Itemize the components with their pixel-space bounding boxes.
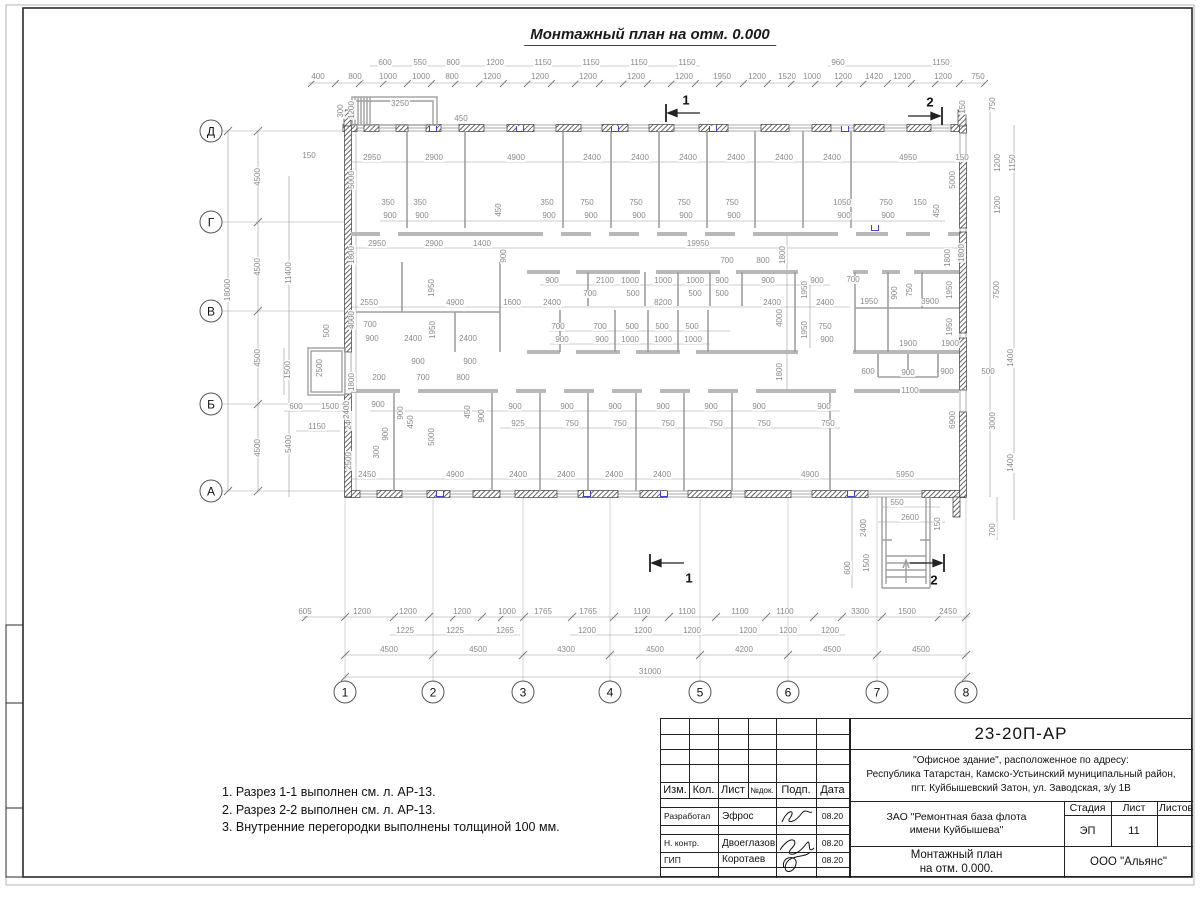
dim-label: 1225 — [445, 627, 465, 635]
dim-label: 1200 — [682, 627, 702, 635]
dim-label: 550 — [889, 499, 904, 507]
dim-label: 150 — [301, 152, 316, 160]
dim-label: 750 — [676, 199, 691, 207]
tb-col-doc: №док. — [748, 782, 776, 798]
dim-label: 150 — [912, 199, 927, 207]
dim-label: 1225 — [395, 627, 415, 635]
tb-name-3: Коротаев — [719, 852, 775, 867]
dim-label: 5000 — [348, 170, 356, 190]
dim-label: 2400 — [582, 154, 602, 162]
dim-label: 1950 — [801, 280, 809, 300]
tb-client-line2: имени Куйбышева" — [910, 824, 1004, 837]
dim-label: 750 — [989, 96, 997, 111]
panel-mark — [660, 491, 668, 497]
dim-label: 1900 — [898, 340, 918, 348]
dim-label: 350 — [412, 199, 427, 207]
dim-label: 1200 — [626, 73, 646, 81]
dim-label: 1000 — [378, 73, 398, 81]
dim-label: 19950 — [686, 240, 710, 248]
dim-label: 600 — [288, 403, 303, 411]
dim-label: 1200 — [398, 608, 418, 616]
dim-label: 900 — [370, 401, 385, 409]
dim-label: 4200 — [734, 646, 754, 654]
dim-label: 605 — [297, 608, 312, 616]
tb-role-1: Разработал — [661, 807, 718, 825]
dim-label: 1900 — [940, 340, 960, 348]
dim-label: 1050 — [832, 199, 852, 207]
dim-label: 900 — [816, 403, 831, 411]
tb-date-2: 08.20 — [816, 834, 849, 852]
dim-label: 150 — [954, 154, 969, 162]
dim-label: 1200 — [633, 627, 653, 635]
drawing-sheet: Монтажный план на отм. 0.000 60055080012… — [0, 0, 1200, 900]
section-label: 2 — [930, 573, 937, 588]
dim-label: 1200 — [578, 73, 598, 81]
dim-label: 1000 — [411, 73, 431, 81]
dim-label: 900 — [703, 403, 718, 411]
axis-bubble-col-2: 2 — [422, 681, 445, 704]
dim-label: 1200 — [482, 73, 502, 81]
tb-role-3: ГИП — [661, 852, 718, 867]
dim-label: 900 — [410, 358, 425, 366]
dim-label: 1150 — [931, 59, 950, 67]
dim-label: 1200 — [833, 73, 853, 81]
dim-label: 350 — [539, 199, 554, 207]
dim-label: 1520 — [777, 73, 797, 81]
panel-mark — [516, 126, 524, 132]
tb-object-line2: Республика Татарстан, Камско-Устьинский … — [866, 768, 1175, 782]
dim-label: 1265 — [495, 627, 515, 635]
dim-label: 1200 — [778, 627, 798, 635]
dim-label: 1200 — [352, 608, 372, 616]
tb-date-3: 08.20 — [816, 852, 849, 867]
axis-bubble-row-А: А — [200, 480, 223, 503]
tb-stage-value: ЭП — [1064, 815, 1111, 846]
axis-bubble-row-В: В — [200, 300, 223, 323]
dim-label: 1800 — [944, 248, 952, 268]
dim-label: 1800 — [776, 362, 784, 382]
dim-label: 31000 — [638, 668, 662, 676]
dim-label: 1100 — [677, 608, 696, 616]
dim-label: 1200 — [994, 153, 1002, 173]
dim-label: 750 — [878, 199, 893, 207]
dim-label: 900 — [714, 277, 729, 285]
dim-label: 4900 — [506, 154, 526, 162]
dim-label: 800 — [455, 374, 470, 382]
dim-label: 1950 — [946, 317, 954, 337]
dim-label: 900 — [900, 369, 915, 377]
dim-label: 2400 — [774, 154, 794, 162]
entrance-structures — [308, 97, 930, 588]
dim-label: 1765 — [578, 608, 598, 616]
dim-label: 900 — [594, 336, 609, 344]
dim-label: 700 — [415, 374, 430, 382]
dim-label: 1200 — [994, 195, 1002, 215]
dim-label: 750 — [564, 420, 579, 428]
panel-mark — [871, 225, 879, 231]
dim-label: 700 — [550, 323, 565, 331]
tb-object-line3: пгт. Куйбышевский Затон, ул. Заводская, … — [911, 782, 1131, 796]
dim-label: 500 — [684, 323, 699, 331]
tb-drawing-line2: на отм. 0.000. — [920, 862, 994, 876]
dim-label: 900 — [607, 403, 622, 411]
dim-label: 1000 — [653, 336, 673, 344]
dim-label: 700 — [582, 290, 597, 298]
dim-label: 5400 — [285, 434, 293, 454]
axis-bubble-col-1: 1 — [334, 681, 357, 704]
dim-label: 750 — [756, 420, 771, 428]
dim-label: 500 — [980, 368, 995, 376]
left-stamp-strip — [6, 625, 23, 877]
dim-label: 900 — [382, 212, 397, 220]
tb-drawing-line1: Монтажный план — [911, 848, 1003, 862]
dim-label: 1950 — [429, 320, 437, 340]
panel-mark — [583, 491, 591, 497]
dim-label: 900 — [382, 426, 390, 441]
dim-label: 900 — [478, 408, 486, 423]
tb-col-data: Дата — [816, 782, 849, 798]
dim-label: 2400 — [726, 154, 746, 162]
dim-label: 1000 — [497, 608, 517, 616]
dim-label: 700 — [989, 522, 997, 537]
axis-bubble-row-Б: Б — [200, 393, 223, 416]
axis-bubble-col-7: 7 — [866, 681, 889, 704]
dim-label: 1400 — [1007, 453, 1015, 473]
dim-label: 1150 — [581, 59, 600, 67]
dim-label: 7500 — [993, 280, 1001, 300]
tb-sheets-label: Листов — [1157, 801, 1193, 815]
dim-label: 800 — [755, 257, 770, 265]
dim-label: 5000 — [428, 427, 436, 447]
dim-label: 1100 — [775, 608, 794, 616]
dim-label: 4500 — [254, 257, 262, 277]
dim-label: 600 — [860, 368, 875, 376]
dim-label: 4500 — [468, 646, 488, 654]
dim-label: 900 — [583, 212, 598, 220]
dim-label: 900 — [544, 277, 559, 285]
dim-label: 750 — [612, 420, 627, 428]
dim-label: 2400 — [630, 154, 650, 162]
dim-label: 1765 — [533, 608, 553, 616]
dim-label: 1600 — [502, 299, 522, 307]
dim-label: 1150 — [307, 423, 326, 431]
dim-label: 900 — [751, 403, 766, 411]
dim-label: 2600 — [900, 514, 920, 522]
dim-label: 2400 — [458, 335, 478, 343]
dim-label: 900 — [541, 212, 556, 220]
dim-label: 3250 — [390, 100, 410, 108]
dim-label: 1100 — [900, 387, 919, 395]
dim-label: 5000 — [949, 170, 957, 190]
axis-bubble-col-4: 4 — [599, 681, 622, 704]
dim-label: 300 — [373, 444, 381, 459]
dim-label: 900 — [726, 212, 741, 220]
dim-label: 750 — [820, 420, 835, 428]
exterior-walls — [343, 110, 967, 517]
dim-label: 550 — [412, 59, 427, 67]
dim-label: 1000 — [653, 277, 673, 285]
dim-label: 750 — [817, 323, 832, 331]
drawing-title: Монтажный план на отм. 0.000 — [524, 26, 776, 46]
dim-label: 450 — [453, 115, 468, 123]
dim-label: 900 — [939, 368, 954, 376]
dim-label: 900 — [500, 248, 508, 263]
dim-label: 4000 — [776, 308, 784, 328]
tb-sheet-value: 11 — [1111, 815, 1157, 846]
dim-label: 1000 — [802, 73, 822, 81]
dim-label: 4500 — [254, 348, 262, 368]
section-label: 1 — [682, 93, 689, 108]
panel-mark — [436, 491, 444, 497]
dim-label: 750 — [906, 282, 914, 297]
note-line: 3. Внутренние перегородки выполнены толщ… — [222, 819, 560, 837]
dim-label: 2950 — [362, 154, 382, 162]
partitions — [351, 131, 959, 491]
dim-label: 1950 — [859, 298, 879, 306]
dim-label: 2400 — [762, 299, 782, 307]
tb-stage-label: Стадия — [1064, 801, 1111, 815]
dim-label: 18000 — [224, 278, 232, 302]
dim-label: 4500 — [254, 167, 262, 187]
title-block: Изм. Кол. Лист №док. Подп. Дата Разработ… — [660, 718, 1192, 877]
dim-label: 500 — [714, 290, 729, 298]
dim-label: 4500 — [254, 438, 262, 458]
dim-label: 900 — [397, 405, 405, 420]
tb-col-izm: Изм. — [661, 782, 689, 798]
dim-label: 750 — [708, 420, 723, 428]
tb-client-line1: ЗАО "Ремонтная база флота — [886, 811, 1026, 824]
dim-label: 1000 — [620, 277, 640, 285]
axis-bubble-col-6: 6 — [777, 681, 800, 704]
dim-label: 500 — [323, 323, 331, 338]
dim-label: 4500 — [822, 646, 842, 654]
dim-label: 1200 — [485, 59, 505, 67]
dim-label: 1400 — [472, 240, 492, 248]
dim-label: 925 — [510, 420, 525, 428]
tb-doc-number: 23-20П-АР — [849, 719, 1193, 749]
dim-label: 1200 — [452, 608, 472, 616]
dim-label: 1400 — [1007, 348, 1015, 368]
dim-label: 600 — [377, 59, 392, 67]
dim-label: 2950 — [367, 240, 387, 248]
dim-label: 1950 — [712, 73, 732, 81]
dim-label: 150 — [934, 516, 942, 531]
axis-bubble-col-3: 3 — [512, 681, 535, 704]
axis-bubble-col-8: 8 — [955, 681, 978, 704]
dim-label: 900 — [414, 212, 429, 220]
dim-label: 1800 — [779, 245, 787, 265]
dim-label: 1420 — [864, 73, 884, 81]
dim-label: 1150 — [1009, 153, 1017, 172]
tb-name-2: Двоеглазов — [719, 834, 775, 852]
panel-mark — [429, 126, 437, 132]
dim-label: 6900 — [949, 410, 957, 430]
dim-label: 1200 — [738, 627, 758, 635]
dim-label: 4500 — [645, 646, 665, 654]
dim-label: 700 — [362, 321, 377, 329]
dim-label: 900 — [462, 358, 477, 366]
dim-label: 150 — [959, 99, 967, 114]
dim-label: 2400 — [542, 299, 562, 307]
dim-label: 3300 — [850, 608, 870, 616]
dim-label: 3000 — [989, 411, 997, 431]
tb-sheet-label: Лист — [1111, 801, 1157, 815]
dim-label: 500 — [687, 290, 702, 298]
dimension-ticks — [224, 80, 988, 681]
dim-label: 450 — [407, 414, 415, 429]
dim-label: 2400 — [652, 471, 672, 479]
tb-date-1: 08.20 — [816, 807, 849, 825]
dim-label: 900 — [631, 212, 646, 220]
dim-label: 2400 — [343, 400, 351, 420]
dim-label: 1150 — [677, 59, 696, 67]
dim-label: 900 — [809, 277, 824, 285]
tb-role-2: Н. контр. — [661, 834, 718, 852]
dim-label: 2450 — [357, 471, 377, 479]
dim-label: 1200 — [933, 73, 953, 81]
dim-label: 2400 — [403, 335, 423, 343]
dim-label: 8200 — [653, 299, 673, 307]
dim-label: 900 — [655, 403, 670, 411]
dim-label: 750 — [660, 420, 675, 428]
dim-label: 200 — [371, 374, 386, 382]
panel-mark — [847, 491, 855, 497]
note-line: 2. Разрез 2-2 выполнен см. л. АР-13. — [222, 802, 560, 820]
dim-label: 1500 — [863, 553, 871, 573]
dim-label: 2450 — [938, 608, 958, 616]
dim-label: 1200 — [892, 73, 912, 81]
dim-label: 4300 — [556, 646, 576, 654]
dim-label: 2400 — [556, 471, 576, 479]
dim-label: 1500 — [320, 403, 340, 411]
dim-label: 11400 — [285, 261, 293, 285]
dim-label: 300 — [337, 103, 345, 118]
dim-label: 2900 — [424, 240, 444, 248]
dim-label: 1150 — [533, 59, 552, 67]
dim-label: 2550 — [359, 299, 379, 307]
panel-mark — [611, 126, 619, 132]
dim-label: 1000 — [683, 336, 703, 344]
dim-label: 1200 — [674, 73, 694, 81]
axis-bubble-row-Д: Д — [200, 120, 223, 143]
dim-label: 900 — [836, 212, 851, 220]
dim-label: 4950 — [898, 154, 918, 162]
dim-label: 1200 — [530, 73, 550, 81]
dim-label: 600 — [844, 560, 852, 575]
dim-label: 450 — [495, 202, 503, 217]
tb-name-1: Эфрос — [719, 807, 775, 825]
dim-label: 1500 — [897, 608, 917, 616]
dim-label: 3900 — [920, 298, 940, 306]
dim-label: 700 — [719, 257, 734, 265]
dim-label: 900 — [678, 212, 693, 220]
note-line: 1. Разрез 1-1 выполнен см. л. АР-13. — [222, 784, 560, 802]
section-label: 2 — [926, 95, 933, 110]
dim-label: 800 — [444, 73, 459, 81]
dim-label: 1950 — [428, 278, 436, 298]
dim-label: 5950 — [895, 471, 915, 479]
dim-label: 4900 — [800, 471, 820, 479]
dim-label: 800 — [347, 73, 362, 81]
dim-label: 2400 — [678, 154, 698, 162]
dim-label: 700 — [592, 323, 607, 331]
dim-label: 750 — [970, 73, 985, 81]
dim-label: 900 — [507, 403, 522, 411]
signatures — [776, 804, 816, 879]
notes: 1. Разрез 1-1 выполнен см. л. АР-13. 2. … — [222, 784, 560, 837]
dim-label: 500 — [625, 290, 640, 298]
dim-label: 1100 — [730, 608, 749, 616]
dim-label: 900 — [760, 277, 775, 285]
dim-label: 1100 — [632, 608, 651, 616]
tb-col-podp: Подп. — [776, 782, 816, 798]
dim-label: 900 — [554, 336, 569, 344]
dim-label: 2500 — [345, 451, 353, 471]
dim-label: 1800 — [348, 372, 356, 392]
dim-label: 1200 — [577, 627, 597, 635]
dim-label: 1000 — [685, 277, 705, 285]
dim-label: 1800 — [348, 245, 356, 265]
dim-label: 750 — [724, 199, 739, 207]
dim-label: 900 — [819, 336, 834, 344]
dim-label: 2500 — [316, 358, 324, 378]
dim-label: 350 — [380, 199, 395, 207]
dim-label: 700 — [845, 276, 860, 284]
dim-label: 1000 — [620, 336, 640, 344]
dim-label: 400 — [310, 73, 325, 81]
dim-label: 2100 — [595, 277, 615, 285]
panel-mark — [709, 126, 717, 132]
dim-label: 900 — [559, 403, 574, 411]
dim-label: 2400 — [604, 471, 624, 479]
panel-mark — [841, 126, 849, 132]
dim-label: 450 — [933, 203, 941, 218]
dim-label: 2400 — [508, 471, 528, 479]
dim-label: 500 — [624, 323, 639, 331]
dim-label: 4900 — [445, 471, 465, 479]
dim-label: 900 — [880, 212, 895, 220]
dim-label: 900 — [364, 335, 379, 343]
dim-label: 2400 — [815, 299, 835, 307]
dim-label: 1800 — [958, 243, 966, 263]
tb-col-kol: Кол. — [689, 782, 718, 798]
dim-label: 1500 — [284, 360, 292, 380]
section-label: 1 — [685, 571, 692, 586]
dim-label: 1200 — [348, 100, 356, 120]
dim-label: 500 — [654, 323, 669, 331]
dim-label: 1200 — [747, 73, 767, 81]
dim-label: 2400 — [860, 518, 868, 538]
axis-bubble-row-Г: Г — [200, 211, 223, 234]
dim-label: 750 — [579, 199, 594, 207]
dim-label: 800 — [445, 59, 460, 67]
dim-label: 960 — [830, 59, 845, 67]
tb-company: ООО "Альянс" — [1064, 846, 1193, 878]
dim-label: 1950 — [946, 280, 954, 300]
axis-bubble-col-5: 5 — [689, 681, 712, 704]
dim-label: 4500 — [379, 646, 399, 654]
dim-label: 1950 — [801, 320, 809, 340]
dim-label: 1200 — [820, 627, 840, 635]
dim-label: 4000 — [348, 310, 356, 330]
dim-label: 4900 — [445, 299, 465, 307]
tb-col-list: Лист — [718, 782, 748, 798]
dim-label: 2400 — [822, 154, 842, 162]
dim-label: 2900 — [424, 154, 444, 162]
dim-label: 750 — [628, 199, 643, 207]
dim-label: 900 — [891, 285, 899, 300]
dim-label: 450 — [464, 404, 472, 419]
